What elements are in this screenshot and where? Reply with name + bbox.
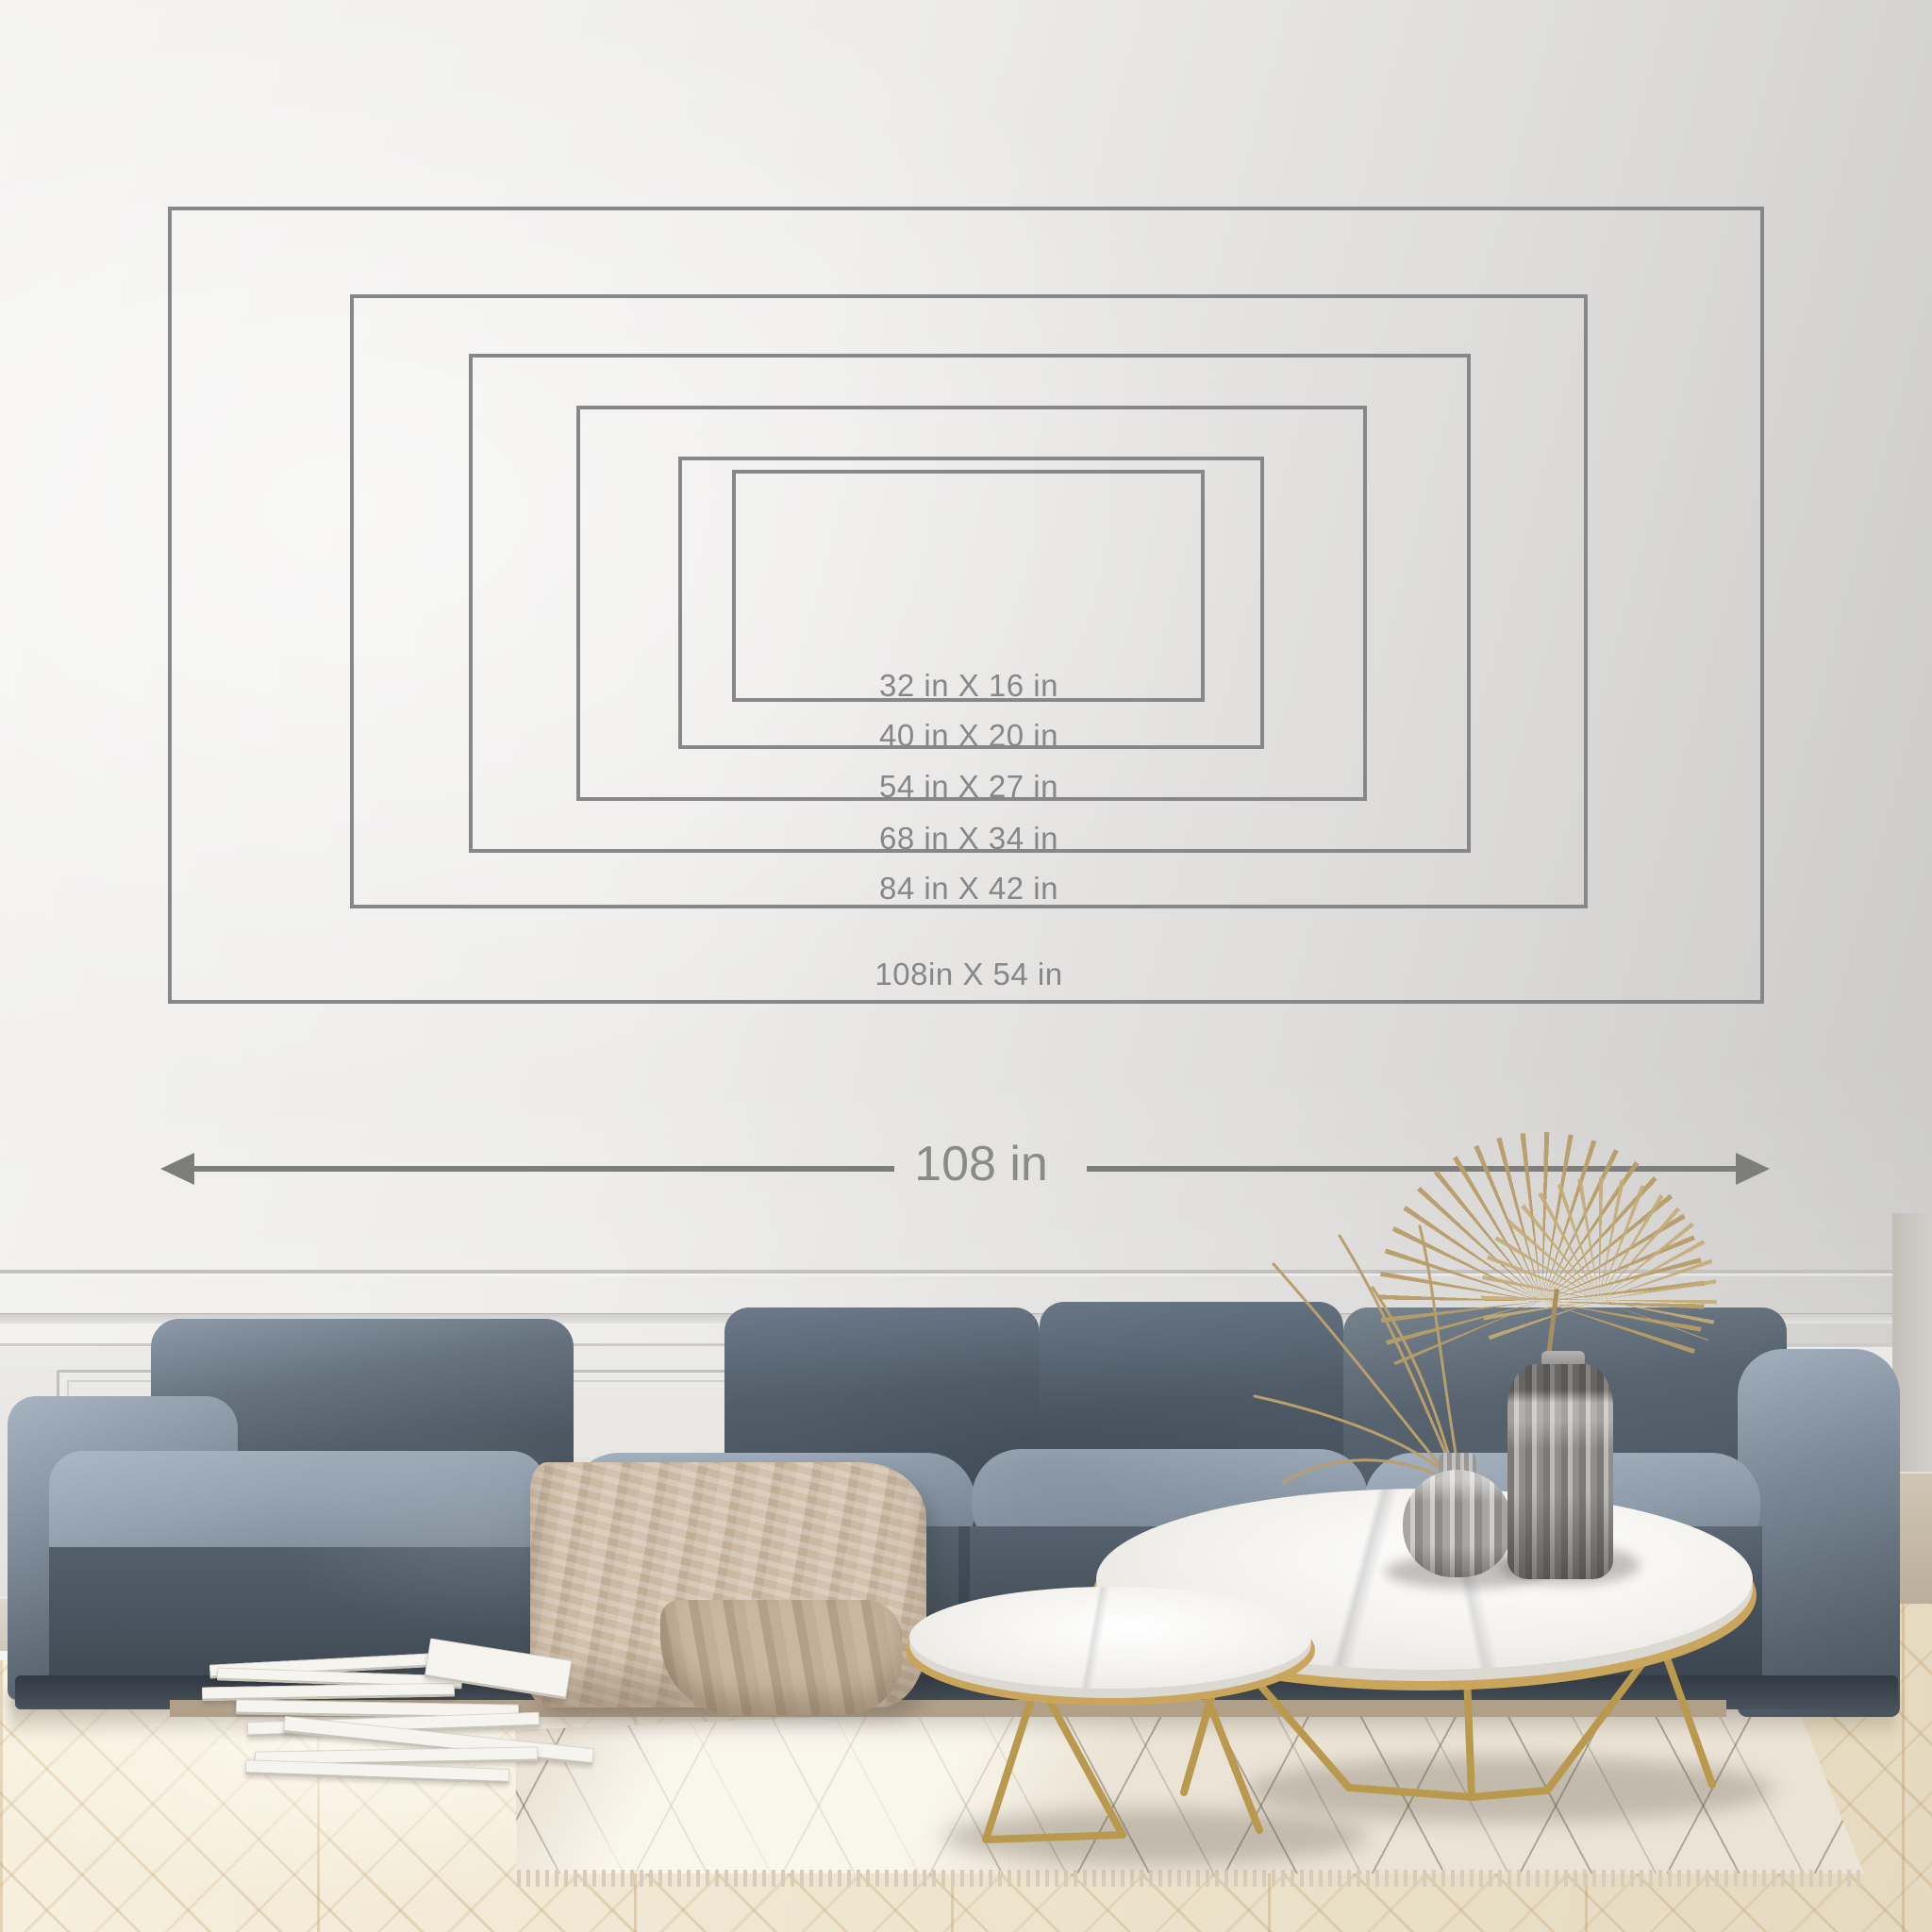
- mockup-scene: 32 in X 16 in 40 in X 20 in 54 in X 27 i…: [0, 0, 1932, 1932]
- width-arrow-label: 108 in: [840, 1136, 1123, 1192]
- knit-throw-blanket-fold: [660, 1600, 902, 1715]
- width-arrow-line-left: [189, 1166, 894, 1172]
- ribbed-glass-vase-small: [1403, 1470, 1512, 1577]
- size-label-40x20: 40 in X 20 in: [799, 717, 1139, 755]
- rug-fringe: [517, 1870, 1864, 1887]
- size-label-54x27: 54 in X 27 in: [799, 768, 1139, 806]
- size-label-84x42: 84 in X 42 in: [799, 870, 1139, 908]
- size-label-68x34: 68 in X 34 in: [799, 820, 1139, 858]
- coffee-table-small-marble-top: [909, 1587, 1311, 1689]
- ribbed-glass-vase-large: [1507, 1364, 1613, 1579]
- size-label-32x16: 32 in X 16 in: [799, 667, 1139, 705]
- size-label-108x54: 108in X 54 in: [799, 956, 1139, 993]
- arrow-head-right-icon: [1736, 1153, 1770, 1185]
